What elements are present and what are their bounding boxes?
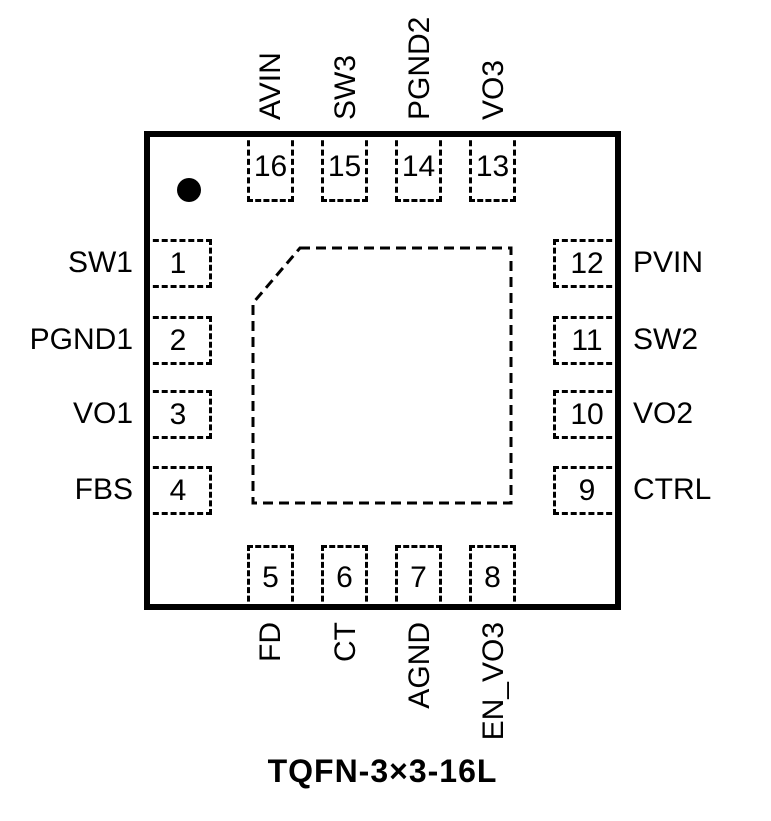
pin-number: 7 xyxy=(410,563,427,593)
pin-number: 16 xyxy=(254,152,287,182)
pin-number: 4 xyxy=(170,476,187,506)
pin-label-vo2: VO2 xyxy=(633,399,771,429)
pin-number: 1 xyxy=(170,249,187,279)
pin-label-sw3: SW3 xyxy=(331,55,361,120)
pin-label-en-vo3: EN_VO3 xyxy=(479,622,509,740)
pin-pad-12: 12 xyxy=(553,239,621,288)
pin-pad-11: 11 xyxy=(553,316,621,365)
pin-label-ct: CT xyxy=(331,622,361,662)
pin-label-ctrl: CTRL xyxy=(633,475,771,505)
pin-number: 5 xyxy=(262,563,279,593)
pinout-diagram: 16 15 14 13 1 2 3 4 12 11 10 9 5 6 7 8 S… xyxy=(0,0,771,821)
pin-number: 6 xyxy=(336,563,353,593)
pin-label-pvin: PVIN xyxy=(633,248,771,278)
pin-number: 2 xyxy=(170,326,187,356)
pin-label-sw2: SW2 xyxy=(633,325,771,355)
pin-pad-7: 7 xyxy=(395,545,442,610)
pin-label-vo3: VO3 xyxy=(479,60,509,120)
pin-pad-14: 14 xyxy=(395,131,442,202)
pin-label-pgnd1: PGND1 xyxy=(0,325,133,355)
pin-pad-13: 13 xyxy=(469,131,516,202)
pin-pad-15: 15 xyxy=(321,131,368,202)
pin-pad-5: 5 xyxy=(247,545,294,610)
pin-number: 10 xyxy=(570,400,603,430)
pin-label-agnd: AGND xyxy=(405,622,435,709)
pin-pad-6: 6 xyxy=(321,545,368,610)
pin-label-avin: AVIN xyxy=(256,52,286,120)
pin-label-vo1: VO1 xyxy=(0,399,133,429)
pin-pad-3: 3 xyxy=(144,390,212,439)
pin-pad-16: 16 xyxy=(247,131,294,202)
pin-number: 8 xyxy=(484,563,501,593)
pin-label-sw1: SW1 xyxy=(0,248,133,278)
pin-number: 14 xyxy=(402,152,435,182)
pin-pad-4: 4 xyxy=(144,466,212,515)
pin-label-pgnd2: PGND2 xyxy=(405,17,435,120)
thermal-pad-outline xyxy=(253,248,511,503)
pin-number: 12 xyxy=(570,249,603,279)
pin-number: 3 xyxy=(170,400,187,430)
pin-label-fbs: FBS xyxy=(0,475,133,505)
pin-pad-8: 8 xyxy=(469,545,516,610)
pin-number: 13 xyxy=(476,152,509,182)
pin-pad-2: 2 xyxy=(144,316,212,365)
pin-pad-9: 9 xyxy=(553,466,621,515)
pin-number: 9 xyxy=(579,476,596,506)
pin-pad-1: 1 xyxy=(144,239,212,288)
pin-pad-10: 10 xyxy=(553,390,621,439)
package-caption: TQFN-3×3-16L xyxy=(144,751,621,791)
pin-label-fd: FD xyxy=(256,622,286,662)
pin1-indicator-dot xyxy=(177,178,201,202)
pin-number: 15 xyxy=(328,152,361,182)
pin-number: 11 xyxy=(571,326,602,356)
